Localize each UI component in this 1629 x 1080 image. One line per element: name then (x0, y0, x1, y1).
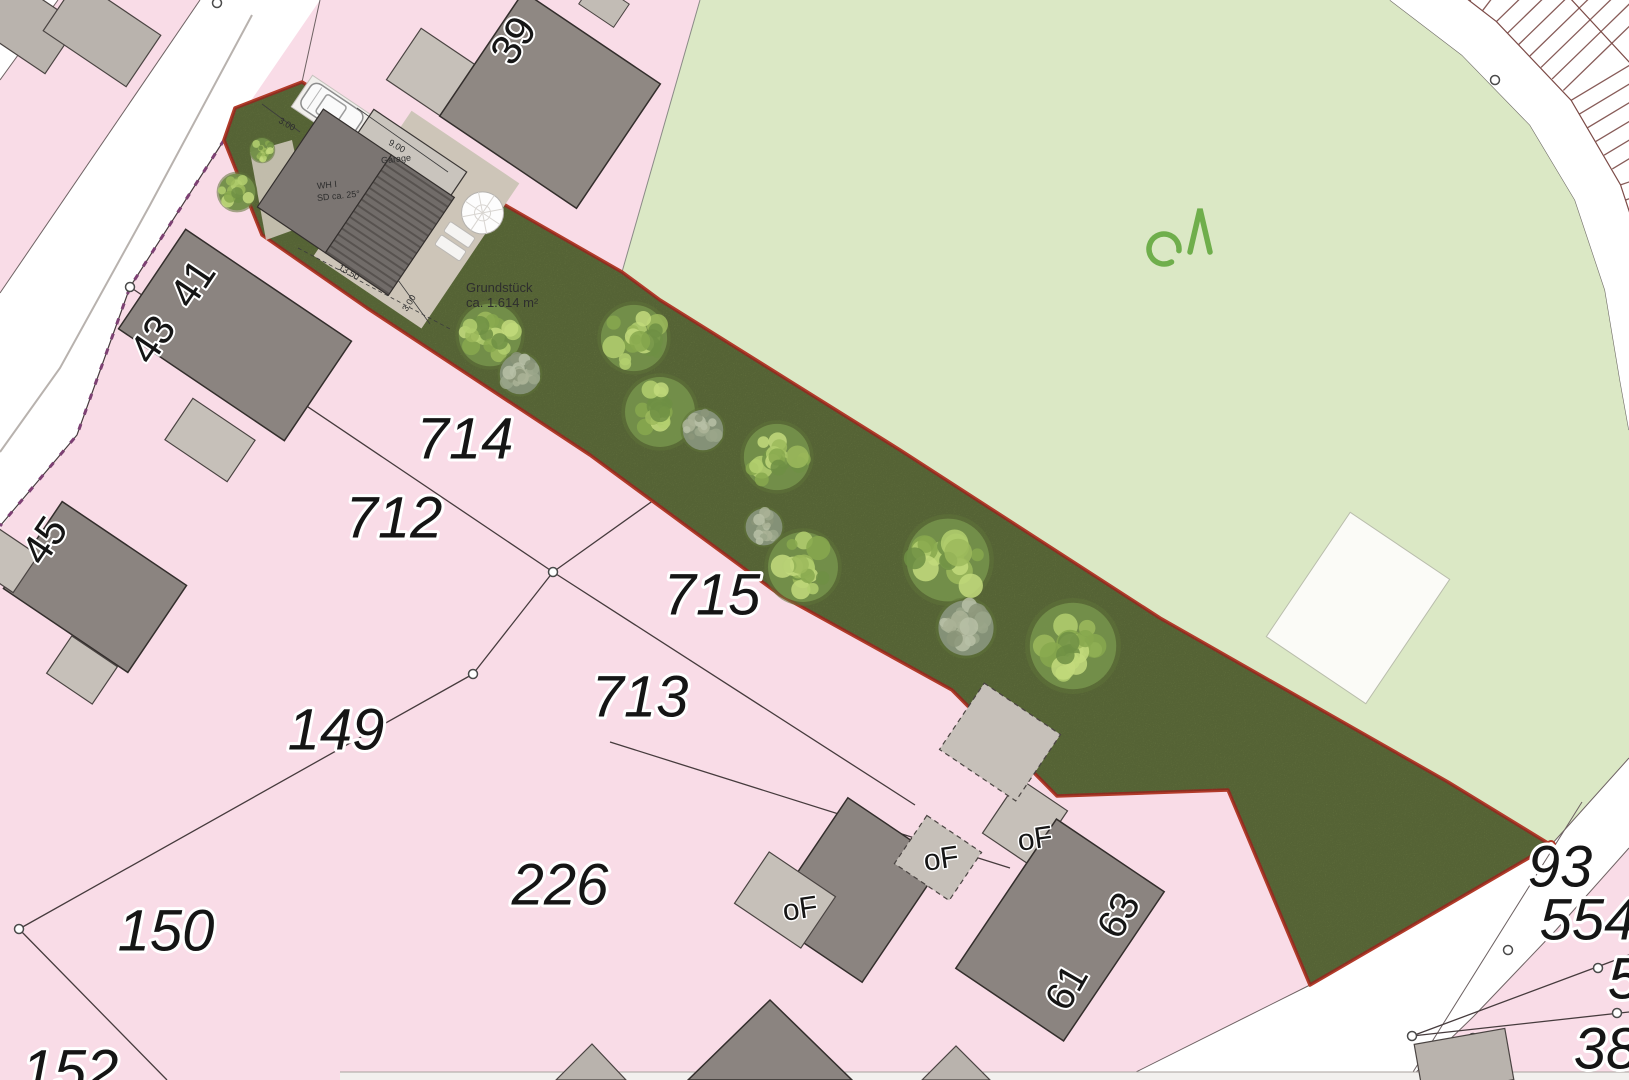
tree (740, 420, 813, 493)
map-label-713: 713 (592, 664, 689, 729)
tree (249, 137, 276, 164)
map-label-oF: oF (1016, 820, 1055, 858)
map-label-150: 150 (118, 898, 215, 963)
map-label-38: 38 (1574, 1016, 1629, 1080)
plot-area-label-line1: Grundstück (466, 280, 533, 295)
tree (902, 514, 994, 606)
tree (1025, 598, 1121, 694)
house-name-label: WH I (316, 179, 337, 191)
map-label-715: 715 (664, 562, 762, 627)
map-label-226: 226 (511, 852, 610, 917)
map-label-554: 554 (1540, 887, 1629, 952)
tree (217, 172, 258, 213)
tree (764, 528, 842, 606)
map-label-149: 149 (288, 697, 385, 762)
map-label-oF: oF (922, 840, 961, 878)
plot-area-label-line2: ca. 1.614 m² (466, 295, 539, 310)
map-label-714: 714 (417, 406, 514, 471)
map-label-oF: oF (781, 890, 820, 928)
site-plan-map: WH I SD ca. 25° Garage 9.00 13.50 3.00 3… (0, 0, 1629, 1080)
map-label-152: 152 (22, 1038, 119, 1080)
tree (681, 408, 726, 453)
tree (498, 352, 543, 397)
site-plan-canvas: WH I SD ca. 25° Garage 9.00 13.50 3.00 3… (0, 0, 1629, 1080)
tree (935, 597, 996, 658)
map-label-712: 712 (346, 485, 443, 550)
map-label-5: 5 (1608, 946, 1629, 1011)
tree (597, 301, 670, 374)
